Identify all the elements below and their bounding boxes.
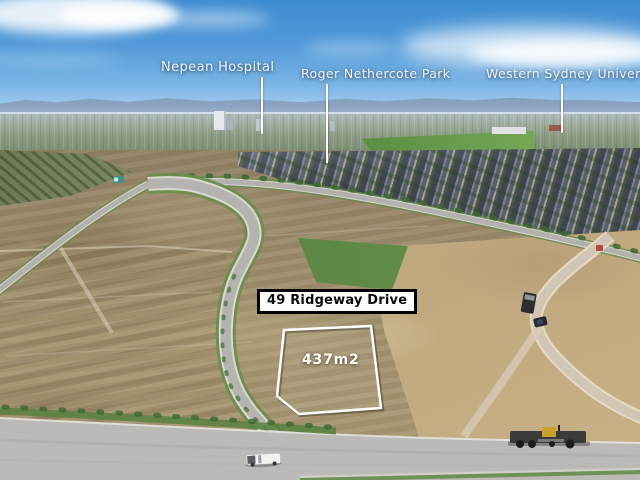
leader-line-nepean xyxy=(261,77,263,134)
curb-line xyxy=(6,342,252,356)
curb-line xyxy=(262,226,428,236)
leader-line-university xyxy=(561,84,563,133)
lot-area-label: 437m2 xyxy=(302,352,360,368)
label-nepean-hospital: Nepean Hospital xyxy=(161,60,274,76)
road-left xyxy=(0,184,148,294)
label-western-sydney-university: Western Sydney University xyxy=(486,66,640,81)
road-sand-branch xyxy=(464,324,541,436)
leader-line-roger-park xyxy=(326,84,328,163)
curb-line xyxy=(2,292,212,302)
road-sand-haul xyxy=(464,236,640,436)
aerial-photo-scene: Nepean Hospital Roger Nethercote Park We… xyxy=(0,0,640,480)
lot-boundary-outline xyxy=(277,326,383,416)
address-plate: 49 Ridgeway Drive xyxy=(257,289,417,314)
grader-vehicle xyxy=(508,425,590,449)
curb-line xyxy=(0,246,232,252)
red-machinery xyxy=(596,245,603,251)
teal-truck-vehicle xyxy=(113,176,124,183)
drainage-strip xyxy=(60,247,112,333)
label-roger-nethercote-park: Roger Nethercote Park xyxy=(301,66,450,81)
